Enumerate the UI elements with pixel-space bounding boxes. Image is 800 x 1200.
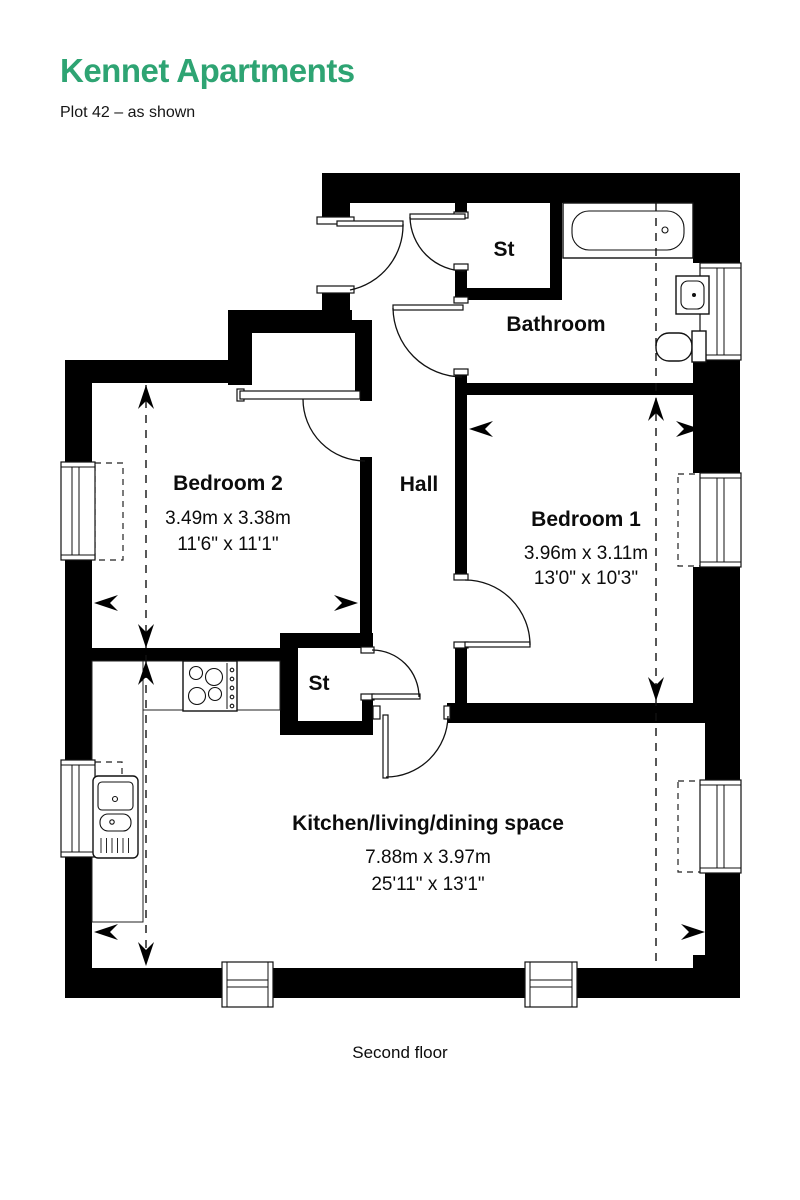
dims-metric-bedroom1: 3.96m x 3.11m [524, 543, 648, 564]
door-storage-lower [372, 650, 420, 699]
kitchen-sink-icon [93, 776, 138, 858]
floor-label: Second floor [352, 1043, 448, 1062]
hob-icon [183, 661, 237, 711]
door-jambs [361, 212, 468, 719]
window-bottom-2 [525, 962, 577, 1007]
dims-imperial-kitchen: 25'11" x 13'1" [371, 874, 484, 895]
room-label-hall: Hall [400, 473, 439, 496]
room-label-bathroom: Bathroom [506, 313, 605, 336]
toilet-icon [656, 331, 706, 362]
door-storage-top [410, 214, 465, 271]
room-label-kitchen: Kitchen/living/dining space [292, 812, 564, 835]
dims-metric-bedroom2: 3.49m x 3.38m [165, 508, 291, 529]
window-bottom-1 [222, 962, 273, 1007]
window-kitchen-right [700, 780, 741, 873]
bathtub-icon [563, 203, 693, 258]
window-kitchen-left [61, 760, 95, 857]
interior-walls [92, 203, 705, 735]
floorplan: St Bathroom Bedroom 2 3.49m x 3.38m 11'6… [0, 0, 800, 1200]
dims-metric-kitchen: 7.88m x 3.97m [365, 847, 491, 868]
dims-imperial-bedroom2: 11'6" x 11'1" [177, 534, 278, 555]
door-kitchen [383, 715, 448, 778]
room-label-storage-lower: St [309, 672, 330, 695]
window-bedroom2-left [61, 462, 95, 560]
room-label-bedroom2: Bedroom 2 [173, 472, 283, 495]
bathroom-sink-icon [676, 276, 709, 314]
room-label-bedroom1: Bedroom 1 [531, 508, 641, 531]
floorplan-page: Kennet Apartments Plot 42 – as shown [0, 0, 800, 1200]
door-bedroom2 [237, 389, 365, 461]
entry-opening [317, 217, 354, 293]
room-label-storage-top: St [494, 238, 515, 261]
dims-imperial-bedroom1: 13'0" x 10'3" [534, 568, 638, 589]
door-bedroom1 [465, 580, 530, 647]
door-bathroom [393, 305, 463, 377]
window-bedroom1-right [700, 473, 741, 567]
